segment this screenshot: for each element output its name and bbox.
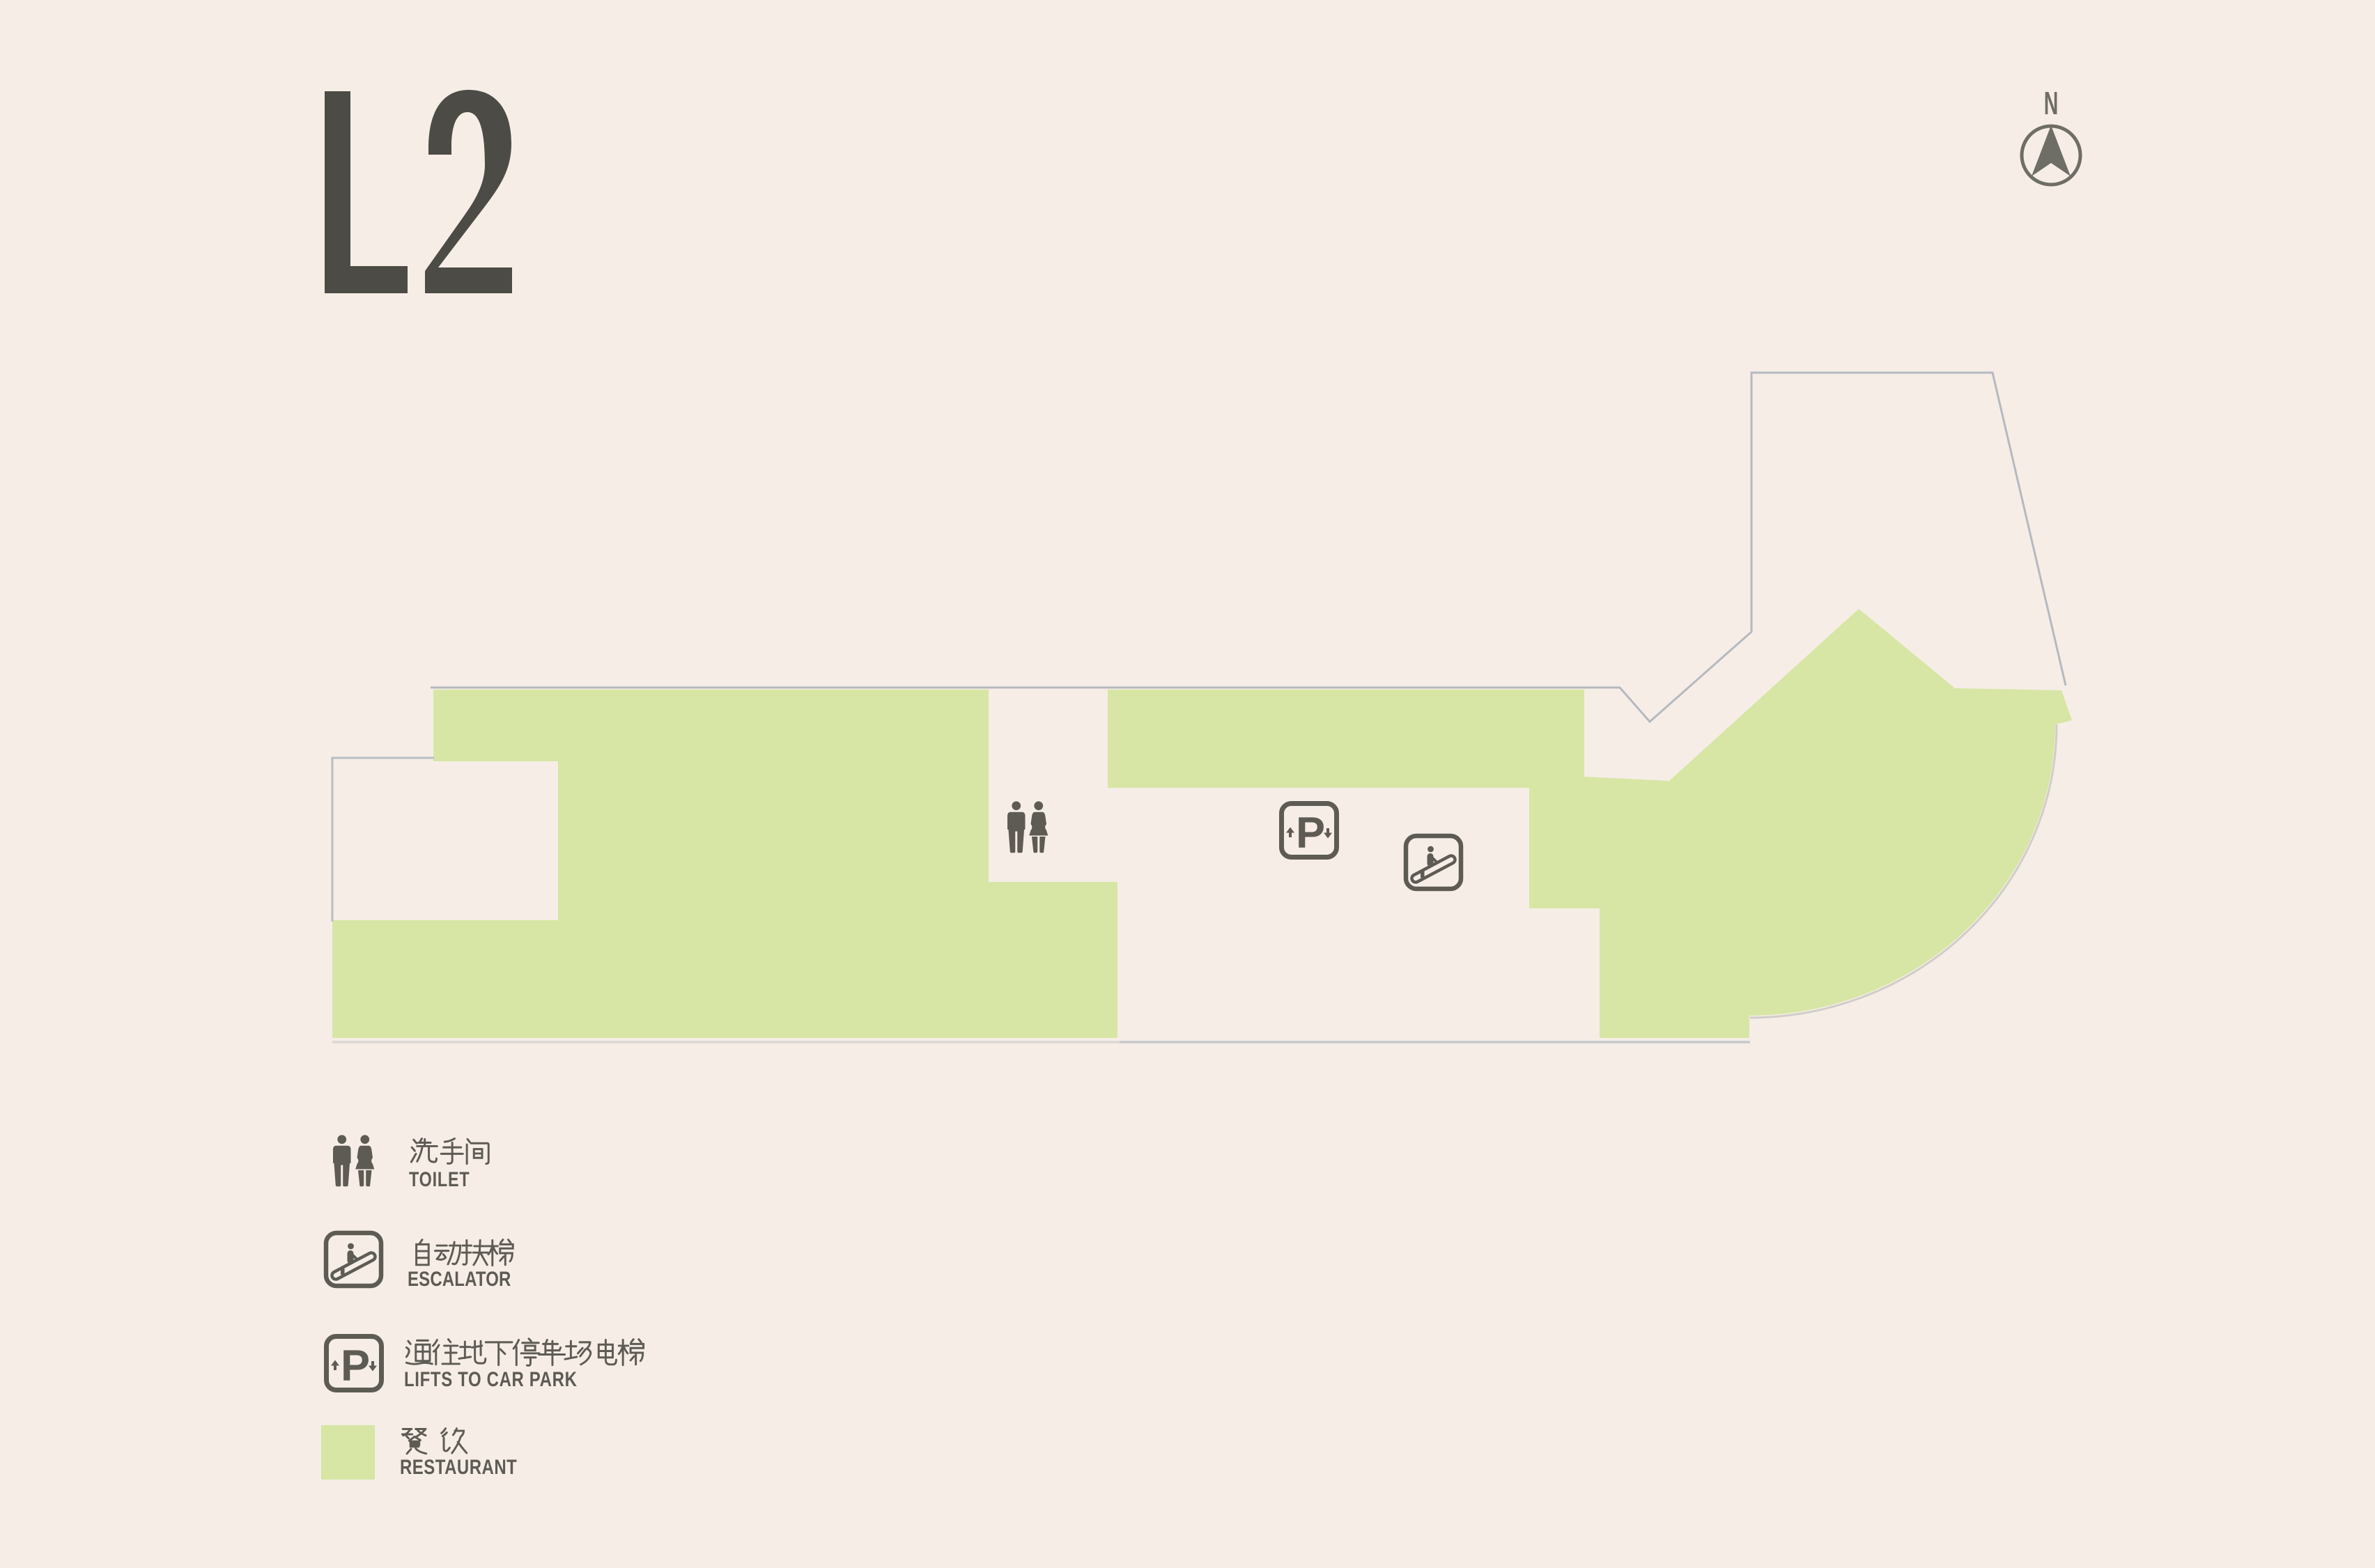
svg-text:N: N <box>2044 86 2059 122</box>
svg-text:ESCALATOR: ESCALATOR <box>408 1266 511 1290</box>
svg-text:RESTAURANT: RESTAURANT <box>400 1454 517 1478</box>
svg-text:TOILET: TOILET <box>409 1167 470 1190</box>
svg-text:LIFTS TO CAR PARK: LIFTS TO CAR PARK <box>404 1367 578 1390</box>
